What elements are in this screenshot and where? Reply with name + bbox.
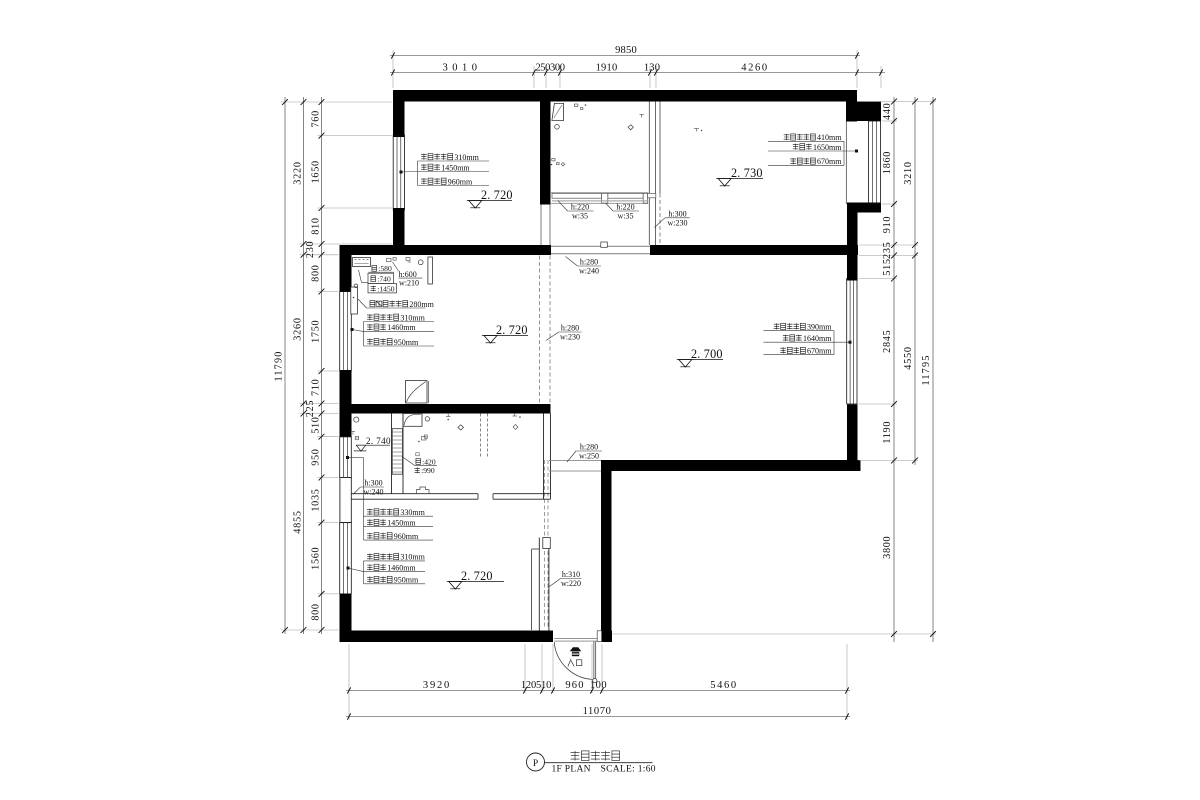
svg-text:670mm: 670mm — [817, 157, 842, 166]
svg-text:1035: 1035 — [311, 488, 322, 511]
svg-text:h:220: h:220 — [571, 203, 589, 212]
svg-text::740: :740 — [377, 275, 391, 284]
svg-text:960mm: 960mm — [448, 177, 473, 186]
svg-text:1190: 1190 — [882, 421, 893, 444]
svg-text:3210: 3210 — [903, 161, 914, 185]
svg-text:1460mm: 1460mm — [387, 323, 416, 332]
svg-text:390mm: 390mm — [807, 323, 832, 332]
svg-text::580: :580 — [378, 264, 392, 273]
svg-text:h:280: h:280 — [580, 443, 598, 452]
svg-text:280mm: 280mm — [409, 300, 434, 309]
svg-text:710: 710 — [311, 379, 322, 396]
svg-text:510: 510 — [311, 416, 322, 433]
svg-text:950mm: 950mm — [394, 338, 419, 347]
svg-text:330mm: 330mm — [400, 508, 425, 517]
svg-text:SCALE: 1:60: SCALE: 1:60 — [601, 765, 656, 775]
svg-text:w:240: w:240 — [579, 267, 599, 276]
svg-text::990: :990 — [421, 466, 435, 475]
svg-text:1750: 1750 — [311, 320, 322, 343]
svg-text:410mm: 410mm — [817, 133, 842, 142]
svg-text:h:280: h:280 — [580, 258, 598, 267]
svg-text:2. 700: 2. 700 — [691, 347, 723, 361]
svg-text:w:240: w:240 — [364, 488, 384, 497]
svg-text:810: 810 — [311, 217, 322, 234]
svg-text:h:300: h:300 — [364, 479, 382, 488]
svg-text:440: 440 — [882, 103, 893, 120]
svg-text:9850: 9850 — [615, 45, 637, 56]
svg-text:4550: 4550 — [903, 346, 914, 370]
svg-text:.J.: .J. — [351, 431, 355, 436]
svg-text:3260: 3260 — [293, 317, 304, 341]
svg-text:1460mm: 1460mm — [387, 563, 416, 572]
svg-text:1860: 1860 — [882, 151, 893, 174]
svg-text::420: :420 — [422, 457, 436, 466]
svg-text:950mm: 950mm — [394, 576, 419, 585]
svg-text:h:600: h:600 — [399, 270, 417, 279]
svg-text:w:220: w:220 — [561, 579, 581, 588]
svg-text:w:250: w:250 — [579, 452, 599, 461]
svg-text:w:210: w:210 — [399, 279, 419, 288]
svg-text:310mm: 310mm — [454, 153, 479, 162]
svg-text:11795: 11795 — [921, 354, 932, 385]
svg-text:225: 225 — [305, 400, 316, 417]
svg-text:800: 800 — [311, 264, 322, 281]
svg-text:100: 100 — [590, 680, 607, 691]
svg-text:h:220: h:220 — [616, 203, 634, 212]
svg-text:2. 720: 2. 720 — [481, 188, 513, 202]
svg-text:2845: 2845 — [882, 330, 893, 353]
svg-text:515: 515 — [882, 258, 893, 275]
svg-text:1450mm: 1450mm — [387, 519, 416, 528]
svg-text:4260: 4260 — [741, 62, 768, 73]
svg-text:2. 720: 2. 720 — [461, 569, 493, 583]
svg-text:1650: 1650 — [311, 160, 322, 183]
svg-text:11790: 11790 — [274, 350, 285, 381]
svg-text:1F PLAN: 1F PLAN — [552, 765, 591, 775]
svg-text:960: 960 — [565, 680, 584, 691]
svg-text:2. 720: 2. 720 — [496, 323, 528, 337]
svg-text:250300: 250300 — [535, 62, 564, 73]
svg-text:3220: 3220 — [293, 161, 304, 185]
svg-text:4855: 4855 — [293, 510, 304, 534]
svg-text:P: P — [533, 759, 538, 769]
svg-text:3800: 3800 — [882, 536, 893, 559]
svg-text:w:35: w:35 — [572, 212, 588, 221]
svg-text:230: 230 — [305, 241, 316, 258]
svg-text:h:280: h:280 — [561, 324, 579, 333]
svg-text:3920: 3920 — [423, 680, 451, 691]
svg-text:1650mm: 1650mm — [813, 143, 842, 152]
svg-text:1910: 1910 — [596, 62, 618, 73]
svg-text:1450mm: 1450mm — [441, 163, 470, 172]
svg-text:310mm: 310mm — [400, 553, 425, 562]
svg-text:w:230: w:230 — [668, 218, 688, 227]
svg-text:130: 130 — [644, 62, 660, 73]
svg-text:310mm: 310mm — [400, 313, 425, 322]
svg-text:3010: 3010 — [443, 62, 482, 73]
svg-text:950: 950 — [311, 448, 322, 465]
svg-text:800: 800 — [311, 603, 322, 620]
svg-text:w:35: w:35 — [618, 212, 634, 221]
svg-text:960mm: 960mm — [394, 532, 419, 541]
svg-text:2. 740: 2. 740 — [366, 436, 391, 446]
svg-text:670mm: 670mm — [807, 347, 832, 356]
svg-text:120510: 120510 — [521, 680, 551, 691]
svg-text:910: 910 — [882, 216, 893, 233]
svg-text:11070: 11070 — [583, 706, 612, 717]
svg-text:w:230: w:230 — [560, 333, 580, 342]
svg-text:1560: 1560 — [311, 547, 322, 570]
svg-text:h:310: h:310 — [562, 570, 580, 579]
svg-text::1450: :1450 — [377, 284, 395, 293]
svg-text:2. 730: 2. 730 — [731, 166, 763, 180]
svg-text:1640mm: 1640mm — [803, 334, 832, 343]
svg-text:235: 235 — [882, 242, 893, 259]
svg-text:760: 760 — [311, 110, 322, 127]
svg-text:5460: 5460 — [710, 680, 737, 691]
svg-text:h:300: h:300 — [668, 209, 686, 218]
